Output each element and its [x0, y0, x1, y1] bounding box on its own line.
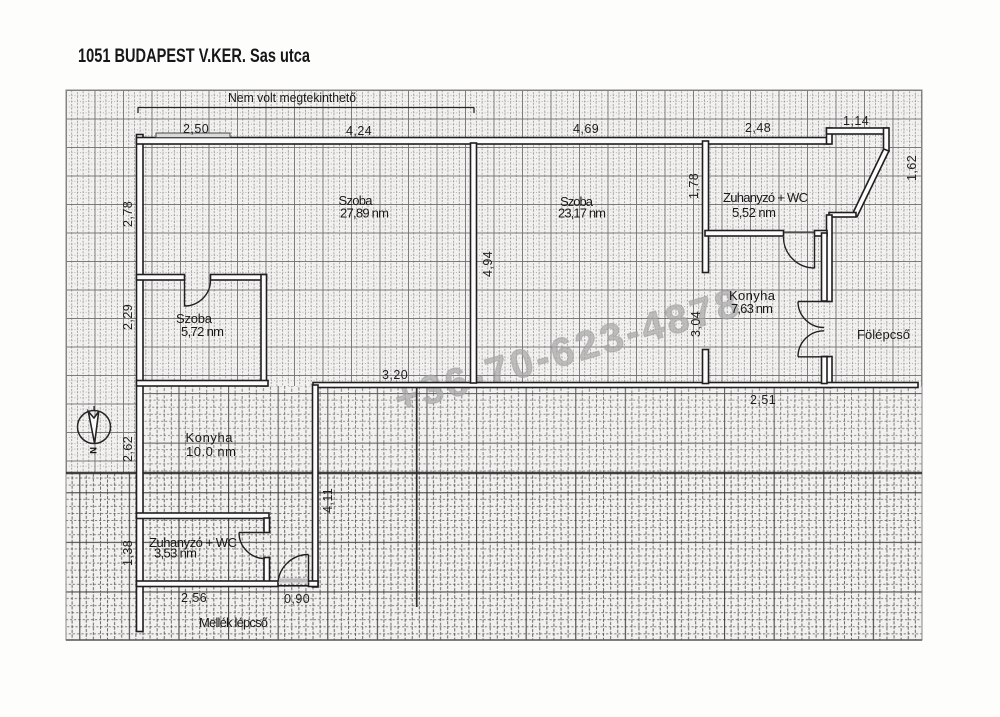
svg-text:3,04: 3,04 [689, 311, 703, 337]
svg-text:Konyha: Konyha [186, 430, 234, 445]
svg-text:7,63 nm: 7,63 nm [731, 301, 773, 316]
svg-text:5,52 nm: 5,52 nm [732, 205, 776, 220]
svg-text:2,78: 2,78 [121, 201, 135, 227]
svg-text:1,62: 1,62 [905, 155, 919, 181]
svg-text:Nem volt megtekinthető: Nem volt megtekinthető [228, 91, 356, 105]
svg-text:Mellék lépcső: Mellék lépcső [199, 615, 268, 630]
svg-text:27,89 nm: 27,89 nm [340, 206, 389, 221]
svg-text:2,50: 2,50 [183, 122, 209, 136]
svg-text:1,14: 1,14 [843, 114, 869, 128]
svg-text:23,17 nm: 23,17 nm [558, 206, 606, 221]
svg-text:Zuhanyzó + WC: Zuhanyzó + WC [723, 190, 808, 205]
svg-text:10.0 nm: 10.0 nm [186, 444, 236, 459]
svg-text:4,94: 4,94 [481, 251, 495, 277]
svg-text:4,69: 4,69 [573, 122, 599, 136]
svg-text:2,29: 2,29 [121, 304, 135, 330]
svg-text:3,20: 3,20 [382, 368, 408, 382]
svg-text:4,11: 4,11 [321, 488, 335, 513]
svg-text:2,56: 2,56 [181, 591, 207, 605]
svg-text:4,24: 4,24 [346, 124, 372, 138]
svg-text:2,51: 2,51 [750, 393, 776, 407]
svg-text:1051 BUDAPEST V.KER. Sas utca: 1051 BUDAPEST V.KER. Sas utca [78, 46, 310, 67]
svg-text:2,48: 2,48 [745, 121, 771, 135]
svg-text:3,53 nm: 3,53 nm [154, 546, 197, 561]
svg-text:1,38: 1,38 [121, 540, 135, 566]
svg-text:5,72 nm: 5,72 nm [181, 324, 224, 339]
svg-text:N: N [87, 447, 98, 454]
svg-text:2,62: 2,62 [121, 436, 135, 462]
svg-text:Fölépcső: Fölépcső [857, 327, 910, 342]
svg-text:0,90: 0,90 [284, 592, 310, 606]
svg-text:1,78: 1,78 [687, 173, 701, 199]
